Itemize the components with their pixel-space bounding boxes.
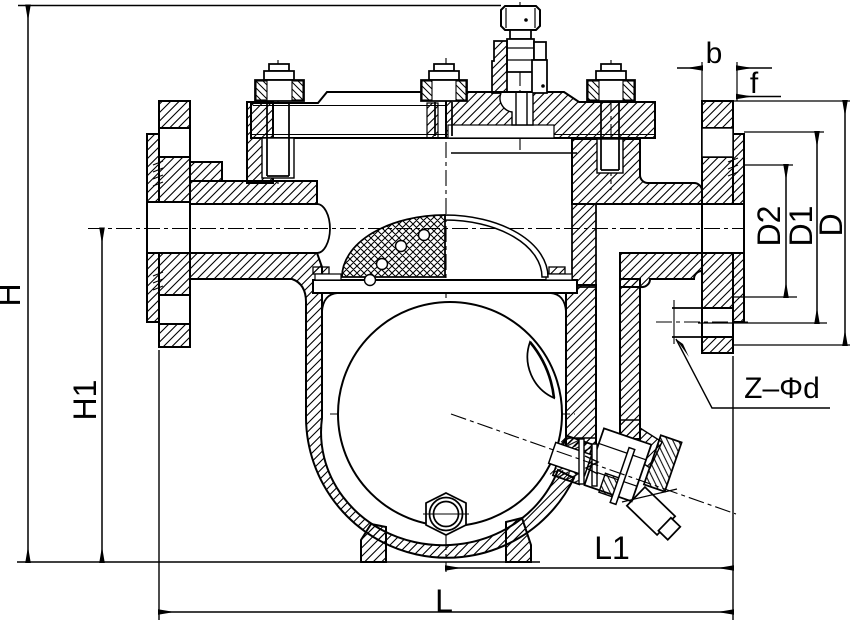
svg-text:D: D [813,213,849,236]
svg-text:f: f [750,67,759,100]
svg-text:b: b [706,37,723,70]
svg-text:D2: D2 [751,206,787,247]
svg-text:H: H [0,283,27,306]
svg-text:H1: H1 [67,380,103,421]
svg-text:Z–Φd: Z–Φd [744,372,820,405]
svg-text:L1: L1 [594,530,630,566]
svg-text:L: L [435,583,453,619]
